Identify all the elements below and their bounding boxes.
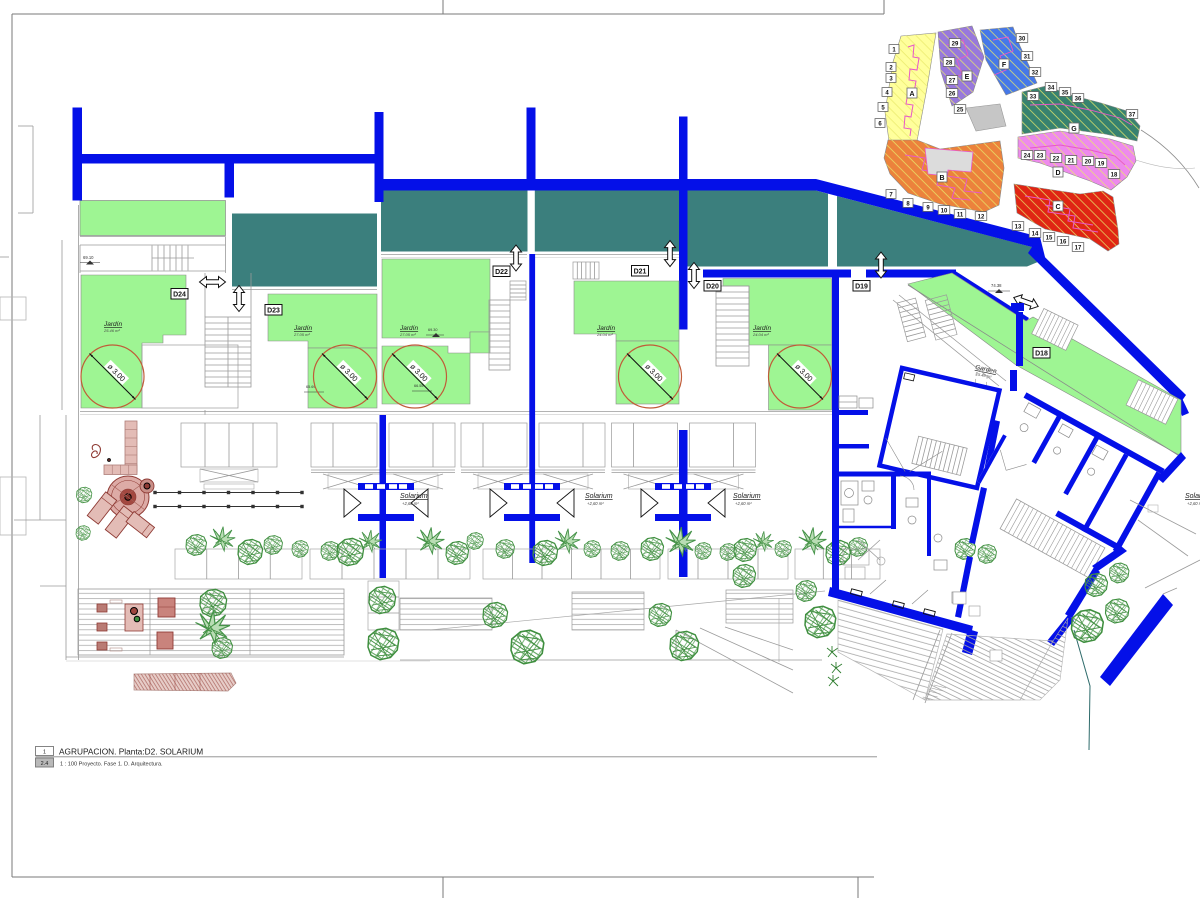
- svg-text:+2,60 m²: +2,60 m²: [587, 501, 604, 506]
- svg-text:19: 19: [1098, 161, 1105, 167]
- svg-text:Jardín: Jardín: [596, 325, 615, 332]
- svg-text:Solarium: Solarium: [1185, 493, 1200, 500]
- svg-text:26: 26: [949, 91, 956, 97]
- svg-text:+2,60 m²: +2,60 m²: [735, 501, 752, 506]
- svg-text:1: 1: [43, 750, 46, 756]
- svg-text:36: 36: [1075, 96, 1082, 102]
- svg-text:23: 23: [1037, 153, 1044, 159]
- svg-text:Jardín: Jardín: [103, 321, 122, 328]
- svg-text:F: F: [1002, 62, 1007, 69]
- svg-text:37: 37: [1129, 112, 1136, 118]
- svg-text:AGRUPACION. Planta:D2. SOLARIU: AGRUPACION. Planta:D2. SOLARIUM: [59, 747, 203, 757]
- svg-text:66.55: 66.55: [414, 384, 424, 388]
- svg-text:31: 31: [1024, 54, 1031, 60]
- svg-text:21: 21: [1068, 158, 1075, 164]
- svg-text:C: C: [1055, 204, 1060, 211]
- svg-text:Jardín: Jardín: [293, 325, 312, 332]
- svg-text:18: 18: [1111, 172, 1118, 178]
- svg-text:27.05 m²: 27.05 m²: [399, 332, 416, 337]
- svg-text:32: 32: [1032, 70, 1039, 76]
- svg-text:A: A: [909, 91, 914, 98]
- svg-text:2.4: 2.4: [41, 761, 49, 767]
- svg-text:Solarium: Solarium: [400, 493, 428, 500]
- svg-text:29: 29: [952, 41, 959, 47]
- svg-text:D19: D19: [855, 284, 868, 291]
- svg-text:24: 24: [1024, 153, 1031, 159]
- svg-text:30: 30: [1019, 36, 1026, 42]
- svg-text:12: 12: [978, 214, 985, 220]
- svg-text:27.05 m²: 27.05 m²: [293, 332, 310, 337]
- svg-text:Jardín: Jardín: [752, 325, 771, 332]
- svg-text:24.04 m²: 24.04 m²: [752, 332, 769, 337]
- svg-text:B: B: [939, 175, 944, 182]
- svg-text:11: 11: [957, 212, 964, 218]
- svg-text:25.46 m²: 25.46 m²: [103, 328, 120, 333]
- svg-text:35: 35: [1062, 90, 1069, 96]
- svg-text:16: 16: [1060, 239, 1067, 245]
- svg-text:D24: D24: [173, 292, 186, 299]
- svg-text:D23: D23: [267, 308, 280, 315]
- svg-text:34: 34: [1048, 85, 1055, 91]
- svg-text:14: 14: [1032, 231, 1039, 237]
- svg-text:33: 33: [1030, 94, 1037, 100]
- svg-text:D20: D20: [706, 284, 719, 291]
- svg-text:Solarium: Solarium: [585, 493, 613, 500]
- svg-text:+2,60 m²: +2,60 m²: [402, 501, 419, 506]
- svg-text:D21: D21: [634, 269, 647, 276]
- svg-text:69.10: 69.10: [83, 255, 94, 260]
- svg-text:22: 22: [1053, 156, 1060, 162]
- svg-text:28: 28: [946, 60, 953, 66]
- svg-text:D18: D18: [1035, 351, 1048, 358]
- svg-text:27: 27: [949, 78, 956, 84]
- svg-text:E: E: [965, 74, 970, 81]
- svg-text:D22: D22: [495, 269, 508, 276]
- svg-text:74.38: 74.38: [991, 283, 1002, 288]
- svg-text:15: 15: [1046, 235, 1053, 241]
- svg-text:13: 13: [1015, 224, 1022, 230]
- svg-text:1 : 100 Proyecto. Fase 1. D. A: 1 : 100 Proyecto. Fase 1. D. Arquitectur…: [60, 762, 163, 768]
- svg-text:17: 17: [1075, 245, 1082, 251]
- svg-text:D: D: [1055, 170, 1060, 177]
- svg-text:69.30: 69.30: [428, 328, 438, 332]
- svg-text:65.69: 65.69: [306, 385, 316, 389]
- svg-text:G: G: [1071, 126, 1077, 133]
- svg-text:Jardín: Jardín: [399, 325, 418, 332]
- svg-text:20: 20: [1085, 159, 1092, 165]
- svg-text:10: 10: [941, 208, 948, 214]
- svg-text:24.04 m²: 24.04 m²: [596, 332, 613, 337]
- svg-text:+2,60 m²: +2,60 m²: [1187, 501, 1200, 506]
- svg-text:25: 25: [957, 107, 964, 113]
- svg-text:Solarium: Solarium: [733, 493, 761, 500]
